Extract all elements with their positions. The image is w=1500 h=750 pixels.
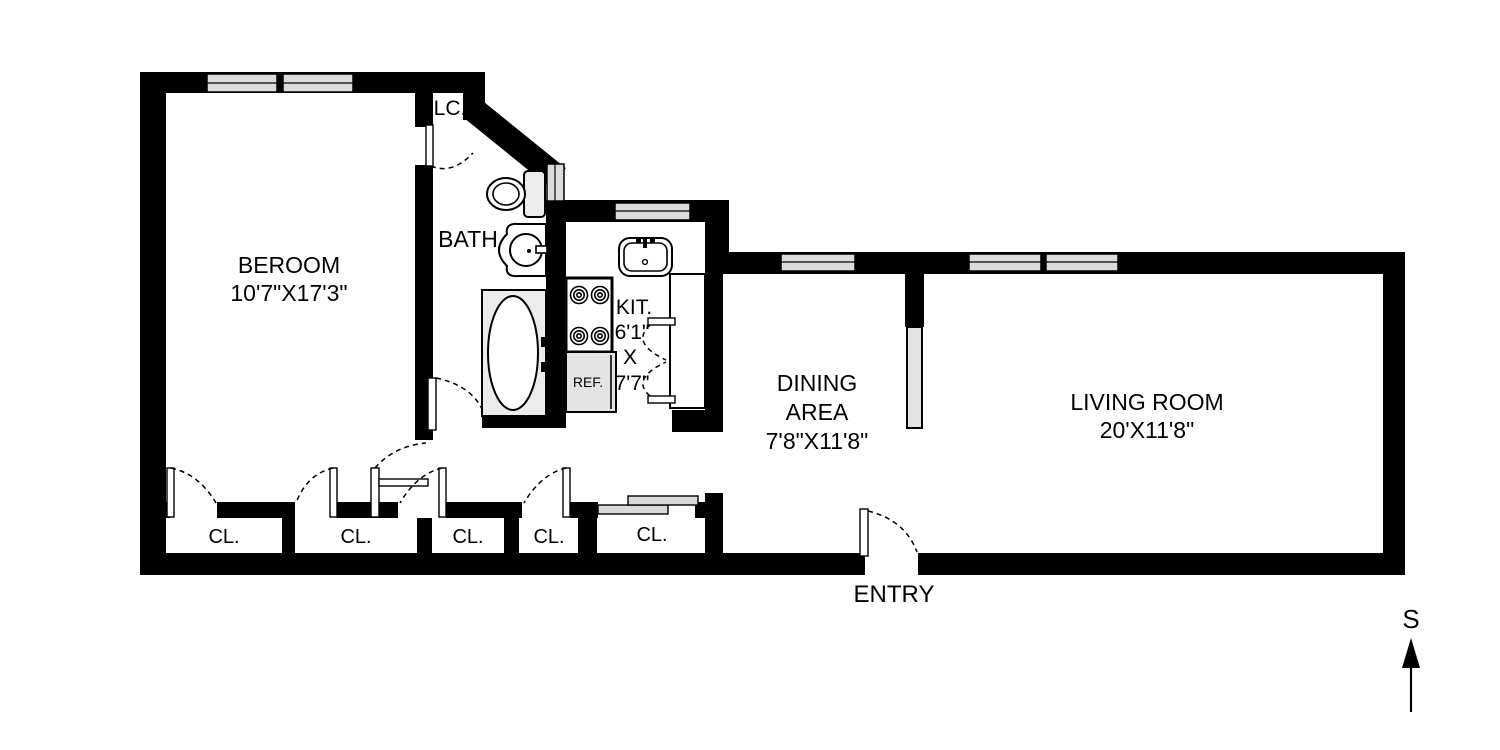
- bath-label: BATH: [438, 226, 498, 252]
- closet-header-4: [446, 502, 522, 518]
- closet4-door: [524, 468, 570, 517]
- kitchen-dim-width: 6'1": [615, 321, 650, 344]
- bedroom-dims: 10'7"X17'3": [230, 280, 347, 306]
- wall-bottom-left: [140, 553, 865, 575]
- closet2-label: CL.: [340, 526, 371, 548]
- closet-divider-2-3: [417, 518, 432, 554]
- entry-door: [860, 509, 917, 556]
- kitchen-counter: [670, 274, 705, 408]
- living-window-1: [969, 254, 1041, 271]
- linen-closet-label: LC.: [434, 97, 467, 120]
- bathtub: [482, 290, 552, 416]
- lc-closet-door: [426, 125, 473, 169]
- wall-diagonal: [474, 110, 558, 178]
- bath-fixtures: [482, 171, 552, 416]
- wall-bottom-right: [918, 553, 1405, 575]
- refrigerator: REF.: [566, 352, 616, 412]
- dining-window: [781, 254, 855, 271]
- closet-header-2: [217, 502, 295, 518]
- bath-sink-faucet: [536, 246, 547, 253]
- wall-dining-living-stub: [905, 274, 924, 327]
- closet-header-6: [695, 502, 723, 518]
- kitchen-window: [615, 203, 690, 220]
- wall-right: [1383, 252, 1405, 575]
- closet-divider-1-2: [282, 518, 295, 554]
- wall-bedroom-right-upper: [415, 93, 433, 127]
- closet1-door: [167, 468, 216, 517]
- closet-header-3: [337, 502, 398, 518]
- closet2-door: [296, 468, 337, 517]
- closet-divider-3-4: [504, 518, 519, 554]
- bath-window: [547, 164, 564, 201]
- wall-kitchen-bottom-stub: [672, 410, 723, 432]
- stove: [566, 278, 612, 352]
- dining-dims: 7'8"X11'8": [766, 428, 869, 454]
- living-window-2: [1046, 254, 1118, 271]
- bedroom-window-1: [207, 74, 277, 92]
- wall-bath-kitchen: [546, 200, 566, 428]
- kitchen-label: KIT.: [616, 296, 652, 319]
- toilet: [487, 171, 545, 217]
- pilaster-dining-living: [907, 327, 922, 428]
- wall-left: [140, 72, 166, 575]
- living-room-label: LIVING ROOM: [1070, 389, 1223, 415]
- wall-dining-left: [705, 274, 723, 410]
- closet5-label: CL.: [636, 524, 667, 546]
- floor-plan-page: REF.: [0, 0, 1500, 750]
- closet4-label: CL.: [533, 526, 564, 548]
- closet-header-5: [570, 502, 598, 518]
- closet5-sliding-door: [598, 496, 698, 514]
- closet-header-1: [140, 502, 170, 518]
- closet-divider-4-5: [578, 518, 597, 554]
- bedroom-window-2: [283, 74, 353, 92]
- compass-label: S: [1402, 604, 1419, 634]
- kitchen-dim-depth: 7'7": [615, 372, 650, 395]
- kitchen-dim-sep: X: [623, 346, 637, 369]
- closet1-label: CL.: [208, 526, 239, 548]
- refrigerator-label: REF.: [573, 374, 603, 390]
- bedroom-label: BEROOM: [238, 252, 340, 278]
- living-room-dims: 20'X11'8": [1100, 417, 1195, 443]
- bath-door: [428, 378, 484, 430]
- entry-label: ENTRY: [854, 581, 935, 608]
- bath-sink: [499, 224, 547, 276]
- bedroom-door: [371, 443, 428, 517]
- compass: S: [1402, 604, 1420, 712]
- dining-label-line1: DINING: [777, 370, 858, 396]
- wall-kitchen-right-exterior: [705, 200, 729, 274]
- floor-plan-drawing: REF.: [0, 0, 1500, 750]
- closet3-label: CL.: [452, 526, 483, 548]
- closet3-door: [400, 468, 446, 517]
- compass-arrow-head: [1402, 638, 1420, 668]
- bathtub-drain: [541, 362, 552, 372]
- bathtub-faucet: [541, 337, 552, 347]
- dining-label-line2: AREA: [786, 399, 849, 425]
- kitchen-sink: [619, 237, 672, 276]
